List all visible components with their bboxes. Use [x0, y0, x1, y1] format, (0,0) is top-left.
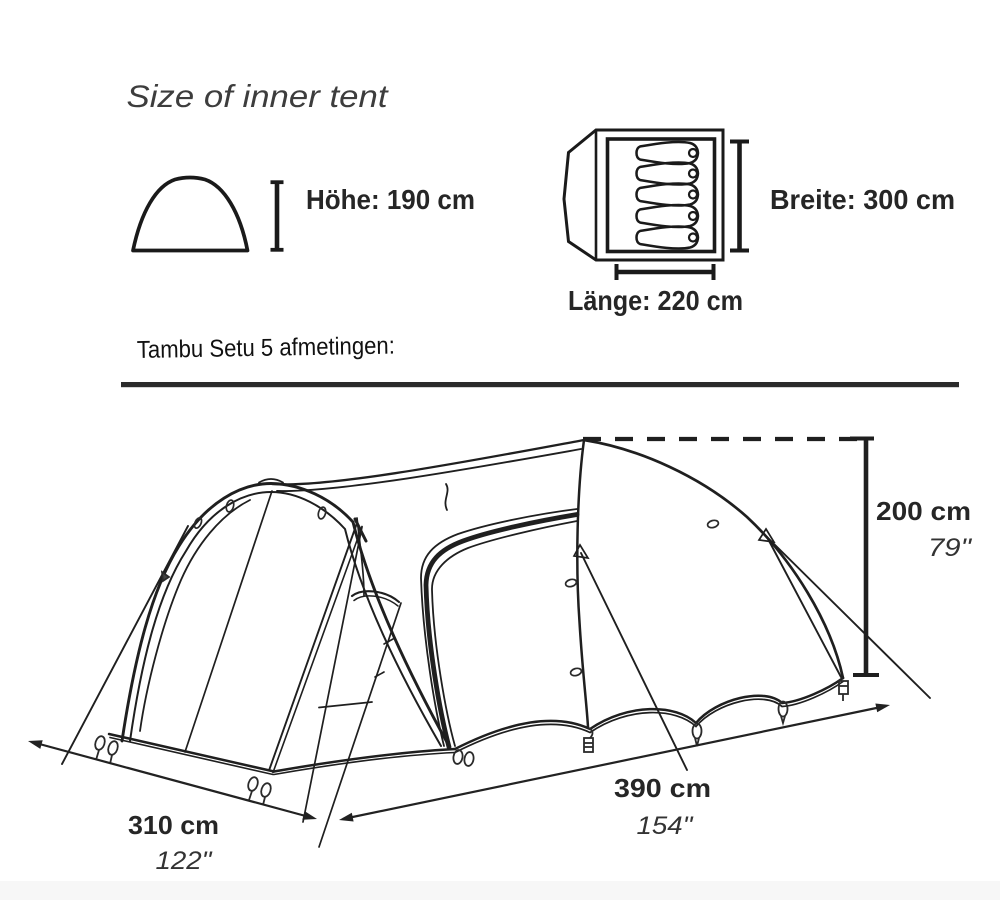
svg-text:Tambu Setu 5 afmetingen:: Tambu Setu 5 afmetingen:: [137, 333, 395, 364]
svg-text:Länge: 220 cm: Länge: 220 cm: [568, 285, 743, 316]
svg-text:122": 122": [156, 847, 213, 875]
svg-text:Breite: 300 cm: Breite: 300 cm: [770, 184, 955, 215]
svg-text:Size of inner tent: Size of inner tent: [127, 78, 389, 114]
svg-text:200 cm: 200 cm: [876, 496, 971, 526]
svg-text:154": 154": [637, 812, 694, 840]
svg-text:390 cm: 390 cm: [614, 773, 711, 803]
svg-text:79": 79": [928, 534, 972, 562]
svg-text:310 cm: 310 cm: [128, 810, 219, 840]
svg-text:Höhe: 190 cm: Höhe: 190 cm: [306, 184, 475, 215]
